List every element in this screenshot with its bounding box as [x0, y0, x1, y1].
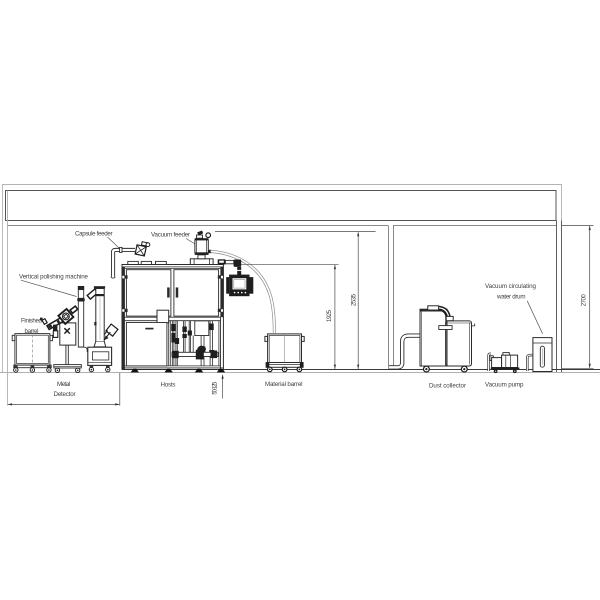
svg-text:2535: 2535 — [352, 293, 358, 306]
svg-text:Material barrel: Material barrel — [265, 381, 303, 388]
svg-text:Dust collector: Dust collector — [429, 382, 466, 389]
svg-text:1925: 1925 — [327, 309, 333, 322]
svg-text:Hosts: Hosts — [161, 382, 176, 389]
svg-text:Detector: Detector — [54, 391, 76, 398]
svg-text:water drum: water drum — [496, 294, 526, 301]
svg-text:50-125: 50-125 — [213, 381, 219, 395]
svg-text:2700: 2700 — [581, 294, 587, 307]
svg-text:Metal: Metal — [57, 381, 70, 388]
svg-text:Vacuum feeder: Vacuum feeder — [151, 232, 190, 239]
svg-text:Finished: Finished — [21, 318, 43, 325]
svg-text:Capsule feeder: Capsule feeder — [75, 231, 113, 238]
svg-text:Vacuum circulating: Vacuum circulating — [485, 283, 537, 290]
svg-text:Vertical polishing machine: Vertical polishing machine — [19, 273, 89, 280]
svg-text:Vacuum pump: Vacuum pump — [485, 382, 524, 389]
